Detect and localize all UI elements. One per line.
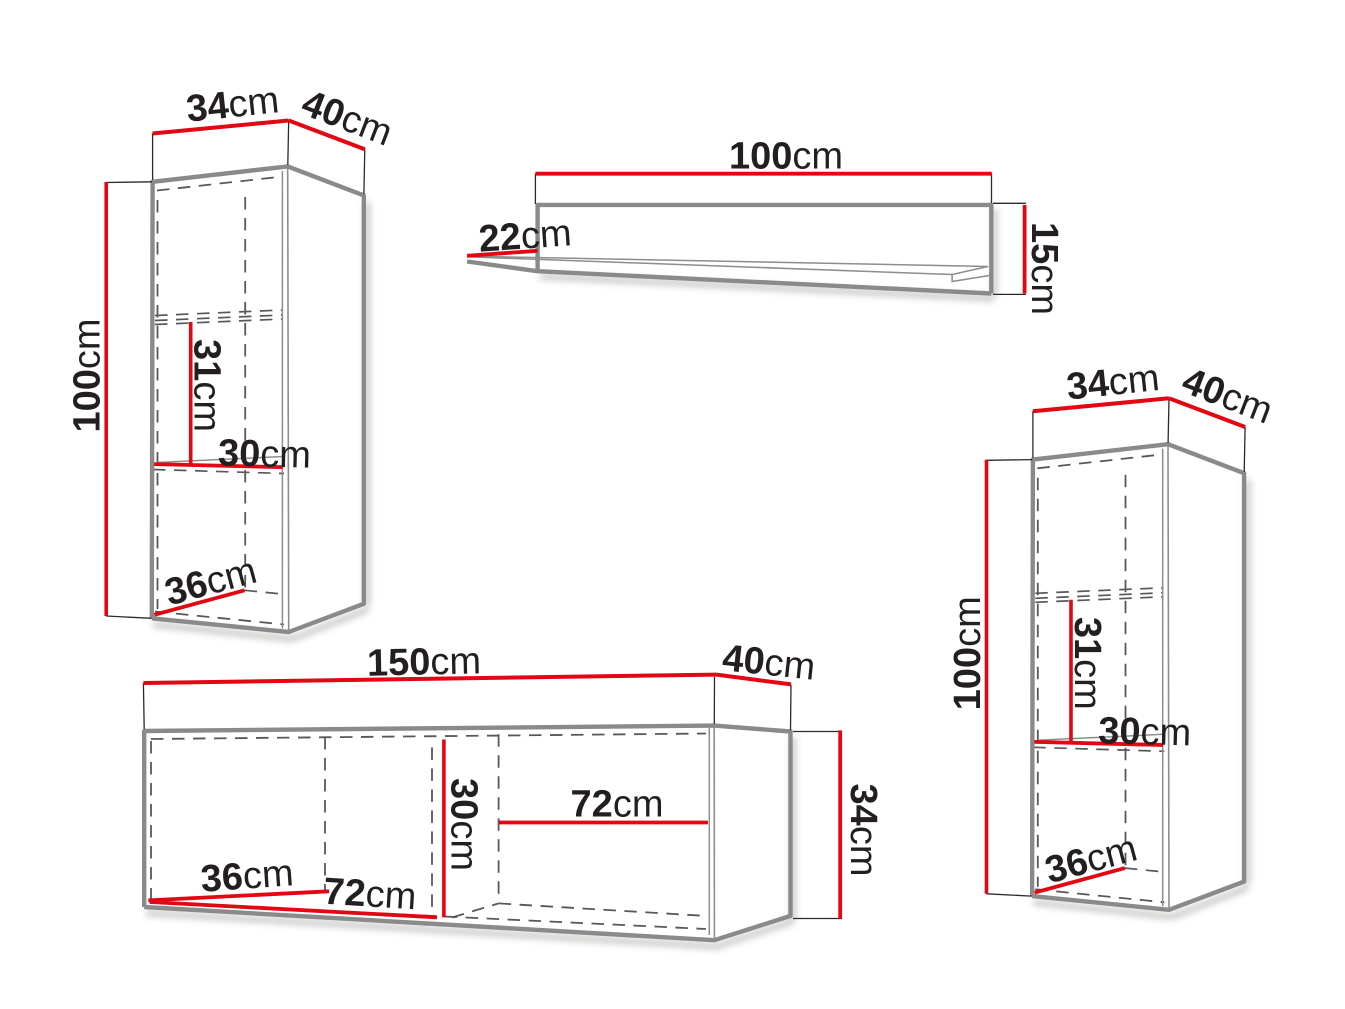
svg-text:72cm: 72cm (322, 871, 417, 919)
svg-text:31cm: 31cm (1066, 617, 1108, 710)
svg-text:34cm: 34cm (842, 784, 884, 877)
svg-text:100cm: 100cm (67, 318, 109, 432)
svg-text:100cm: 100cm (729, 136, 843, 178)
svg-text:30cm: 30cm (443, 778, 485, 871)
svg-text:100cm: 100cm (947, 596, 989, 710)
svg-text:150cm: 150cm (367, 640, 482, 684)
svg-text:15cm: 15cm (1023, 222, 1065, 315)
svg-text:72cm: 72cm (571, 784, 664, 826)
svg-text:40cm: 40cm (720, 637, 817, 688)
svg-text:30cm: 30cm (1098, 710, 1192, 754)
svg-text:36cm: 36cm (161, 550, 262, 615)
svg-text:36cm: 36cm (199, 852, 295, 900)
svg-text:22cm: 22cm (477, 212, 573, 260)
svg-text:36cm: 36cm (1041, 827, 1142, 892)
svg-text:30cm: 30cm (217, 432, 311, 476)
svg-text:31cm: 31cm (186, 339, 228, 432)
